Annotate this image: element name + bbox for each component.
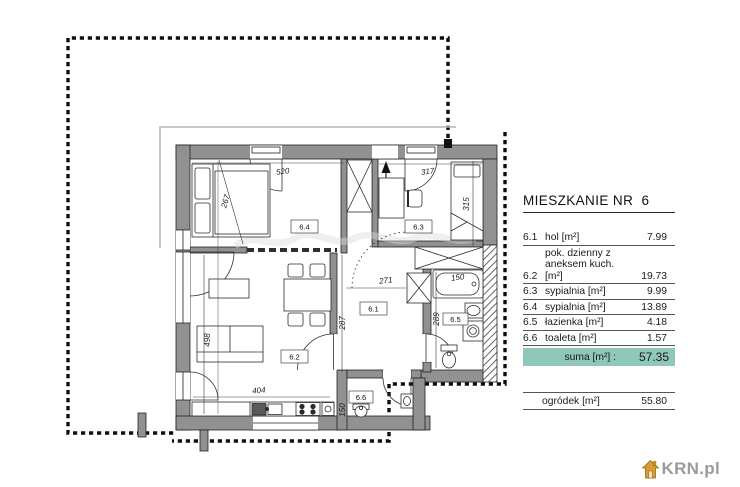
room-number: 6.4 [523, 302, 545, 314]
dim-271: 271 [378, 275, 393, 285]
kitchen-counter [192, 402, 334, 416]
wc-basin [401, 394, 413, 408]
dining-table-set [284, 264, 331, 326]
dim-289: 289 [432, 312, 441, 327]
room-name: łazienka [m²] [545, 317, 625, 329]
garden-value: 55.80 [625, 396, 675, 407]
room-name: sypialnia [m²] [545, 286, 625, 298]
dim-150-toilet: 150 [338, 403, 347, 417]
room-area: 1.57 [625, 333, 675, 345]
room-name: toaleta [m²] [545, 333, 625, 345]
room-name: pok. dzienny z aneksem kuch. [m²] [545, 248, 625, 283]
room-label-6-3: 6.3 [413, 223, 424, 232]
room-number: 6.5 [523, 317, 545, 329]
double-bed [192, 164, 270, 237]
garden-area-row: ogródek [m²] 55.80 [523, 392, 675, 410]
garden-label: ogródek [m²] [523, 396, 625, 407]
room-label-6-2: 6.2 [289, 353, 300, 362]
table-row: 6.1 hol [m²] 7.99 [523, 230, 675, 246]
room-number: 6.2 [523, 271, 545, 283]
room-label-6-5: 6.5 [450, 315, 461, 324]
bathroom-toilet [441, 345, 457, 368]
table-row: 6.4 sypialnia [m²] 13.89 [523, 300, 675, 316]
dim-520: 520 [276, 166, 291, 177]
dim-315: 315 [462, 197, 471, 211]
room-label-6-4: 6.4 [299, 223, 310, 232]
room-label-6-6: 6.6 [356, 393, 367, 402]
table-row: 6.3 sypialnia [m²] 9.99 [523, 284, 675, 300]
dim-404: 404 [252, 385, 267, 395]
krn-logo[interactable]: KRN.pl [642, 459, 720, 479]
wc-toilet [353, 404, 369, 417]
room-number: 6.1 [523, 232, 545, 244]
wardrobe-hall-wide [415, 247, 483, 269]
table-row: 6.5 łazienka [m²] 4.18 [523, 315, 675, 331]
room-area: 4.18 [625, 317, 675, 329]
room-area: 13.89 [625, 302, 675, 314]
logo-text: KRN.pl [662, 459, 720, 479]
total-value: 57.35 [623, 350, 675, 364]
stove [296, 403, 320, 416]
floor-plan-page: 520 267 317 315 498 404 287 271 289 150 … [0, 0, 740, 487]
room-area: 7.99 [625, 232, 675, 244]
table-row: 6.6 toaleta [m²] 1.57 [523, 331, 675, 347]
room-area: 9.99 [625, 286, 675, 298]
dim-317: 317 [421, 166, 436, 177]
room-number: 6.3 [523, 286, 545, 298]
hatched-wall [483, 245, 497, 382]
dim-498: 498 [203, 333, 212, 347]
room-name: hol [m²] [545, 232, 625, 244]
coffee-table [209, 279, 249, 298]
table-row: 6.2 pok. dzienny z aneksem kuch. [m²] 19… [523, 246, 675, 285]
room-label-6-1: 6.1 [368, 305, 379, 314]
total-area-row: suma [m²] : 57.35 [523, 348, 675, 366]
room-number: 6.6 [523, 333, 545, 345]
apartment-summary-panel: MIESZKANIE NR 6 6.1 hol [m²] 7.99 6.2 po… [523, 193, 675, 410]
total-label: suma [m²] : [523, 352, 623, 363]
dim-150-bathtub: 150 [450, 272, 465, 283]
boundary-pillar [444, 139, 452, 148]
dim-287: 287 [338, 316, 347, 331]
room-name: sypialnia [m²] [545, 302, 625, 314]
wardrobe-hall-small [407, 273, 431, 303]
apartment-title: MIESZKANIE NR 6 [523, 193, 675, 213]
room-area: 19.73 [625, 271, 675, 283]
desk [379, 178, 422, 218]
house-icon [642, 460, 659, 479]
wardrobe-bedroom-large [347, 160, 372, 212]
